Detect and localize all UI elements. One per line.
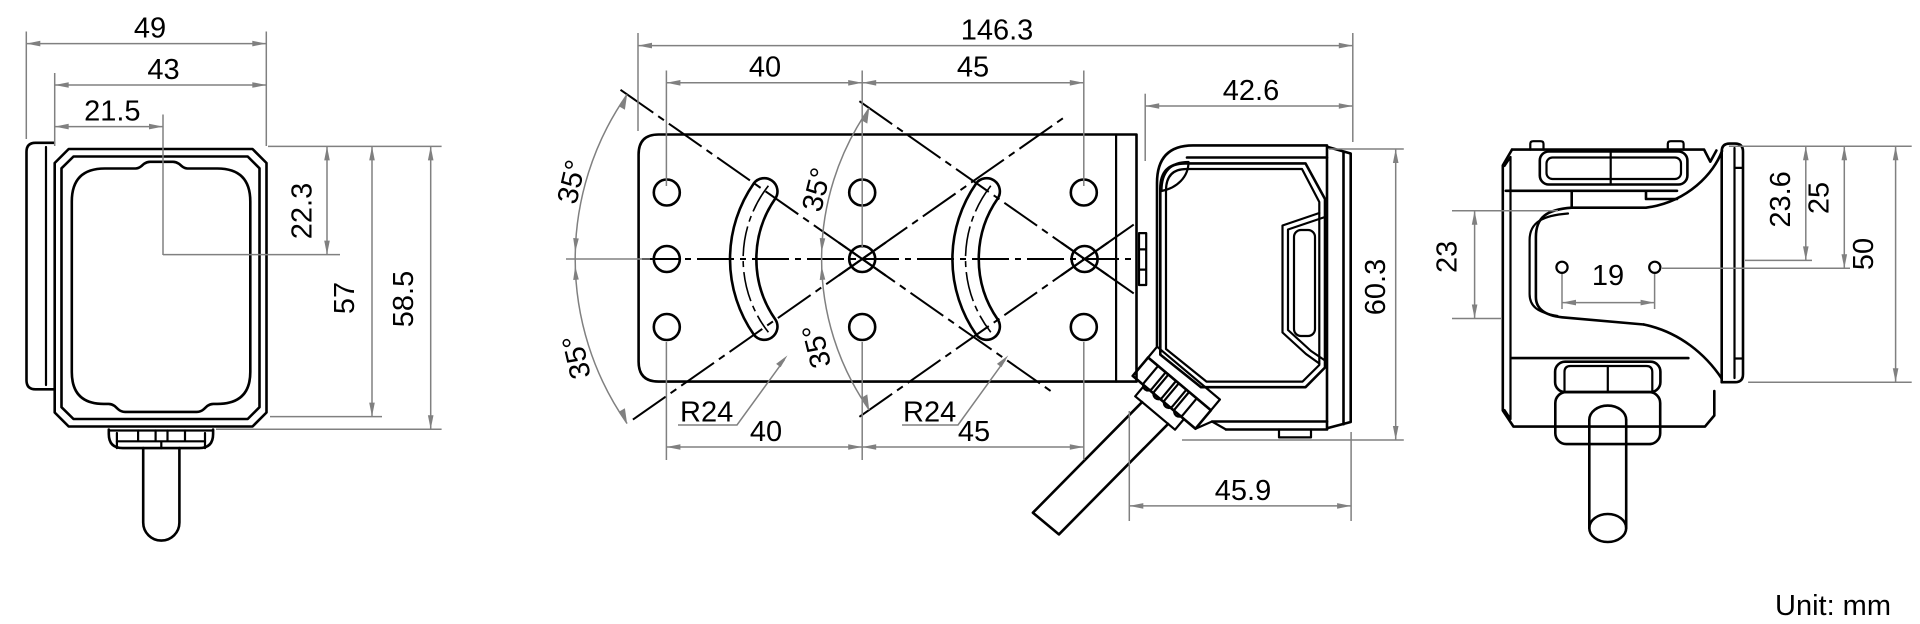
- svg-text:45: 45: [958, 416, 990, 448]
- svg-text:25: 25: [1803, 182, 1835, 214]
- svg-text:42.6: 42.6: [1223, 75, 1279, 107]
- svg-text:60.3: 60.3: [1360, 259, 1392, 315]
- svg-text:57: 57: [329, 282, 361, 314]
- svg-text:49: 49: [134, 13, 166, 45]
- svg-text:23.6: 23.6: [1765, 171, 1797, 227]
- svg-text:146.3: 146.3: [961, 15, 1034, 47]
- svg-text:19: 19: [1592, 260, 1624, 292]
- svg-text:50: 50: [1848, 238, 1880, 270]
- svg-text:40: 40: [749, 52, 781, 84]
- svg-text:45.9: 45.9: [1215, 475, 1271, 507]
- svg-text:Unit: mm: Unit: mm: [1775, 590, 1891, 622]
- svg-text:R24: R24: [903, 397, 956, 429]
- svg-text:R24: R24: [680, 397, 733, 429]
- svg-text:23: 23: [1432, 241, 1464, 273]
- svg-text:58.5: 58.5: [388, 271, 420, 327]
- svg-text:22.3: 22.3: [287, 183, 319, 239]
- svg-text:40: 40: [750, 416, 782, 448]
- svg-text:21.5: 21.5: [84, 96, 140, 128]
- svg-text:45: 45: [957, 52, 989, 84]
- svg-text:43: 43: [147, 54, 179, 86]
